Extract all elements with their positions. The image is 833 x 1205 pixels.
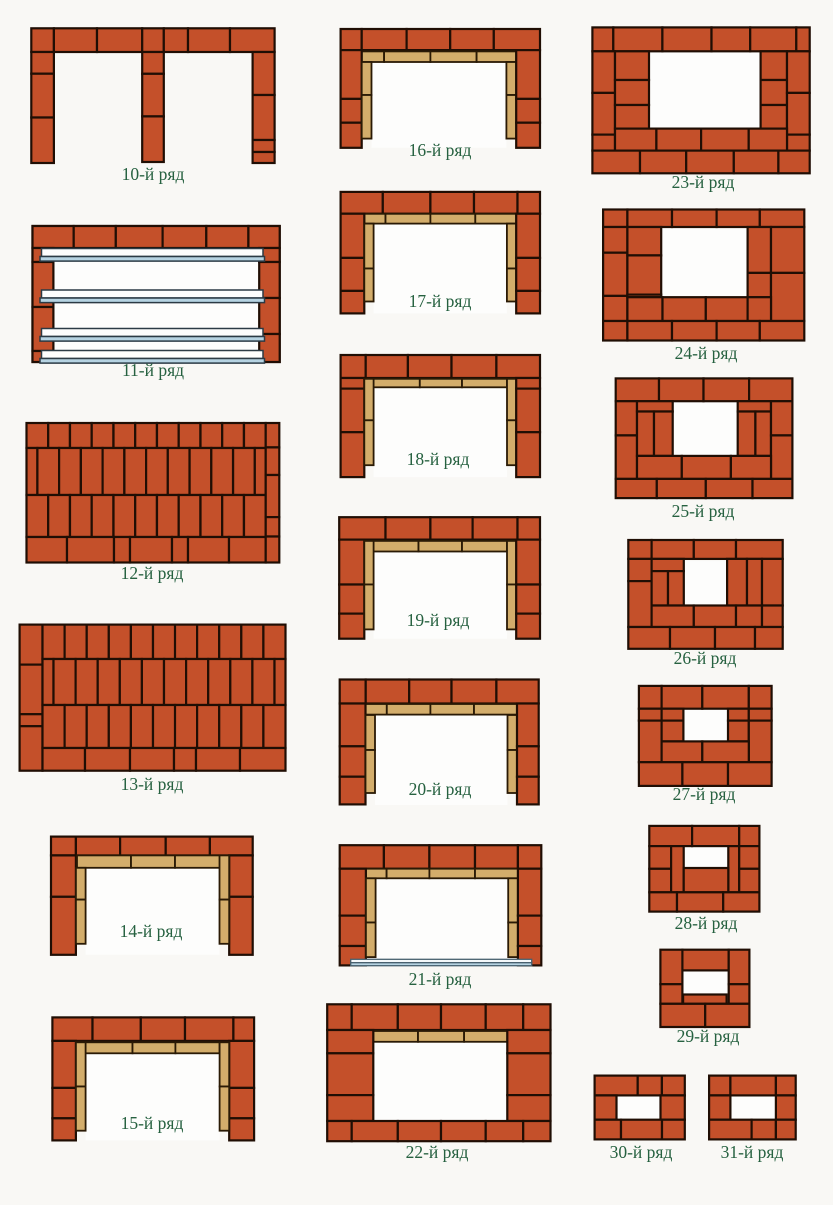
svg-text:17-й ряд: 17-й ряд <box>409 291 472 311</box>
svg-text:19-й ряд: 19-й ряд <box>407 610 470 630</box>
svg-text:30-й ряд: 30-й ряд <box>610 1142 673 1162</box>
svg-text:23-й ряд: 23-й ряд <box>672 172 735 192</box>
svg-text:12-й ряд: 12-й ряд <box>121 563 184 583</box>
svg-text:20-й ряд: 20-й ряд <box>409 779 472 799</box>
svg-text:24-й ряд: 24-й ряд <box>675 343 738 363</box>
svg-text:14-й ряд: 14-й ряд <box>120 921 183 941</box>
svg-text:28-й ряд: 28-й ряд <box>675 913 738 933</box>
svg-text:10-й ряд: 10-й ряд <box>122 164 185 184</box>
svg-text:11-й ряд: 11-й ряд <box>122 360 184 380</box>
svg-text:26-й ряд: 26-й ряд <box>674 648 737 668</box>
svg-text:15-й ряд: 15-й ряд <box>121 1113 184 1133</box>
svg-text:31-й ряд: 31-й ряд <box>721 1142 784 1162</box>
svg-text:27-й ряд: 27-й ряд <box>673 784 736 804</box>
svg-text:13-й ряд: 13-й ряд <box>121 774 184 794</box>
svg-text:16-й ряд: 16-й ряд <box>409 140 472 160</box>
svg-text:18-й ряд: 18-й ряд <box>407 449 470 469</box>
svg-text:25-й ряд: 25-й ряд <box>672 501 735 521</box>
svg-text:21-й ряд: 21-й ряд <box>409 969 472 989</box>
svg-text:29-й ряд: 29-й ряд <box>677 1026 740 1046</box>
svg-text:22-й ряд: 22-й ряд <box>406 1142 469 1162</box>
